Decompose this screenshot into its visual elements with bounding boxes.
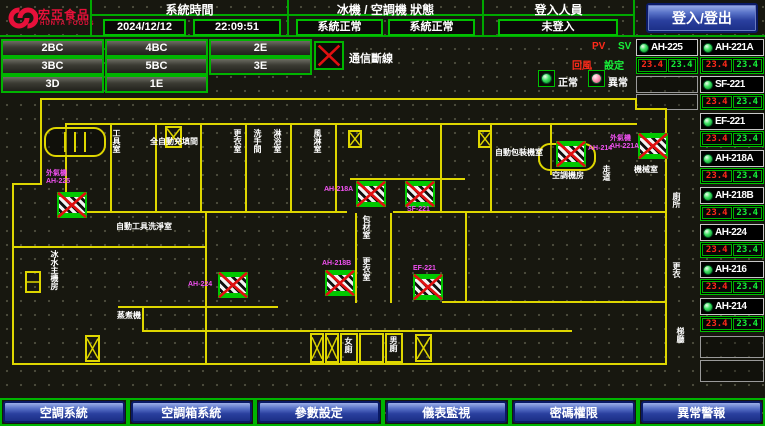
unit-label: AH-224	[188, 281, 212, 289]
wall	[12, 183, 14, 365]
room-label: 冰水主機房	[50, 250, 59, 290]
floor-button-2bc[interactable]: 2BC	[1, 39, 104, 57]
ahu-unit-icon-ah-225[interactable]	[57, 192, 87, 218]
stairs-icon	[44, 127, 106, 157]
room-label: 淋浴室	[273, 129, 282, 153]
unit-label: AH-214	[588, 145, 612, 153]
floor-button-4bc[interactable]: 4BC	[105, 39, 208, 57]
floor-button-1e[interactable]: 1E	[105, 75, 208, 93]
status-lamp-icon	[703, 228, 713, 238]
setpoint-row-label: 設定	[604, 57, 624, 72]
pv-header: PV	[592, 41, 605, 52]
ahu-unit-icon-sf-221[interactable]	[405, 181, 435, 207]
status-lamp-icon	[703, 43, 713, 53]
unit-label: SF-221	[407, 206, 430, 214]
status-lamp-icon	[703, 154, 713, 164]
shaft-x-icon	[85, 335, 100, 362]
room-label: 更衣室	[362, 257, 371, 281]
wall	[440, 125, 442, 211]
room-label: 蒸煮機	[117, 311, 141, 320]
floor-button-3bc[interactable]: 3BC	[1, 57, 104, 75]
shaft-x-icon	[310, 333, 324, 363]
shaft-x-icon	[325, 333, 339, 363]
comm-loss-label: 通信斷線	[349, 50, 393, 66]
room-label: 全自動充填間	[150, 137, 200, 146]
equipment-ah-225[interactable]: AH-225	[636, 39, 698, 56]
values-ah-218b: 23.423.4	[700, 205, 764, 221]
wall	[442, 301, 667, 303]
values-sf-221: 23.423.4	[700, 94, 764, 110]
floor-button-5bc[interactable]: 5BC	[105, 57, 208, 75]
values-ah-216: 23.423.4	[700, 279, 764, 295]
sv-header: SV	[618, 41, 631, 52]
nav-ac-system-button[interactable]: 空調系統	[3, 401, 125, 423]
room-label: 更衣	[672, 262, 681, 278]
status-lamp-icon	[639, 43, 649, 53]
wall	[335, 125, 337, 213]
room-label: 風淋室	[313, 129, 322, 153]
wall	[635, 108, 667, 110]
equipment-ah-224[interactable]: AH-224	[700, 224, 764, 241]
unit-label: 外氣機 AH-221A	[610, 135, 639, 151]
nav-password-auth-button[interactable]: 密碼權限	[513, 401, 635, 423]
brand-logo-icon	[8, 4, 38, 32]
wall	[12, 363, 667, 365]
nav-alarm-button[interactable]: 異常警報	[641, 401, 763, 423]
nav-parameter-set-button[interactable]: 參數設定	[258, 401, 380, 423]
shaft-x-icon	[415, 334, 432, 362]
equipment-ef-221[interactable]: EF-221	[700, 113, 764, 130]
nav-ahu-system-button[interactable]: 空調箱系統	[131, 401, 253, 423]
ahu-unit-icon-ah-218b[interactable]	[325, 270, 355, 296]
wall	[12, 183, 42, 185]
wall	[40, 98, 637, 100]
values-ah-225: 23.423.4	[636, 57, 698, 74]
room-label: 工具室	[112, 129, 121, 153]
shaft-x-icon	[348, 130, 362, 148]
status-lamp-icon	[703, 302, 713, 312]
wall	[12, 246, 207, 248]
unit-label: 外氣機 AH-225	[46, 170, 70, 186]
room-label: 廁所	[672, 192, 681, 208]
wall	[40, 98, 42, 185]
hmi-screen: { "header": { "brand": "宏亞食品", "brand_en…	[0, 0, 765, 426]
ahu-unit-icon-ef-221[interactable]	[413, 274, 443, 300]
floor-button-3e[interactable]: 3E	[209, 57, 312, 75]
room-label: 女廁	[344, 337, 353, 353]
ahu-unit-icon-ah-214[interactable]	[556, 141, 586, 167]
equipment-slot-empty	[636, 76, 698, 93]
equipment-ah-214[interactable]: AH-214	[700, 298, 764, 315]
unit-label: AH-218A	[324, 186, 353, 194]
room-label: 男廁	[389, 336, 398, 352]
floor-button-3d[interactable]: 3D	[1, 75, 104, 93]
ahu-unit-icon-ah-218a[interactable]	[356, 181, 386, 207]
bottom-nav: 空調系統 空調箱系統 參數設定 儀表監視 密碼權限 異常警報	[0, 398, 765, 426]
system-time-value: 22:09:51	[193, 19, 281, 36]
wall	[390, 213, 392, 303]
comm-loss-icon	[314, 41, 344, 70]
values-ah-214: 23.423.4	[700, 316, 764, 332]
login-user-value: 未登入	[498, 19, 618, 36]
system-date-value: 2024/12/12	[103, 19, 186, 36]
room-label: 梯廳	[676, 327, 685, 343]
normal-lamp-icon	[538, 70, 555, 87]
status-lamp-icon	[703, 191, 713, 201]
ahu-unit-icon-ah-221a[interactable]	[638, 133, 668, 159]
room-label: 空調機房	[552, 171, 584, 180]
equipment-ah-216[interactable]: AH-216	[700, 261, 764, 278]
wall	[142, 308, 144, 332]
ahu-unit-icon-ah-224[interactable]	[218, 272, 248, 298]
chiller-status-value: 系統正常	[296, 19, 383, 36]
values-ah-224: 23.423.4	[700, 242, 764, 258]
abnormal-lamp-icon	[588, 70, 605, 87]
wall	[290, 125, 292, 213]
wall	[465, 213, 467, 303]
unit-label: AH-218B	[322, 260, 351, 268]
room-label: 機械室	[634, 165, 658, 174]
login-person-label: 登入人員	[484, 1, 633, 16]
room-label: 走道	[602, 165, 611, 181]
ahu-status-value: 系統正常	[388, 19, 475, 36]
room-label: 自動工具洗淨室	[116, 222, 172, 231]
shaft-x-icon	[478, 130, 492, 148]
wall	[200, 125, 202, 213]
login-logout-button[interactable]: 登入/登出	[646, 3, 758, 33]
status-lamp-icon	[703, 265, 713, 275]
room-label: 自動包裝機室	[495, 148, 543, 157]
normal-legend-label: 正常	[558, 74, 578, 89]
room-label: 包材室	[362, 215, 371, 239]
equipment-box-icon	[25, 271, 41, 293]
status-lamp-icon	[703, 117, 713, 127]
room-box	[359, 333, 384, 363]
values-ah-218a: 23.423.4	[700, 168, 764, 184]
wall	[245, 125, 247, 213]
abnormal-legend-label: 異常	[608, 74, 628, 89]
chiller-ahu-status-label: 冰機 / 空調機 狀態	[289, 1, 482, 16]
equipment-ah-221a[interactable]: AH-221A	[700, 39, 764, 56]
room-label: 洗手間	[253, 129, 262, 153]
equipment-slot-empty	[700, 360, 764, 382]
equipment-sf-221[interactable]: SF-221	[700, 76, 764, 93]
equipment-ah-218a[interactable]: AH-218A	[700, 150, 764, 167]
room-label: 更衣室	[233, 129, 242, 153]
wall	[142, 330, 572, 332]
system-time-label: 系統時間	[92, 1, 287, 16]
unit-label: EF-221	[413, 265, 436, 273]
nav-meter-monitor-button[interactable]: 儀表監視	[386, 401, 508, 423]
equipment-slot-empty	[700, 336, 764, 358]
brand-name-en: HUNYA FOODS	[40, 21, 95, 27]
floor-button-2e[interactable]: 2E	[209, 39, 312, 57]
wall	[393, 211, 667, 213]
values-ah-221a: 23.423.4	[700, 57, 764, 74]
status-lamp-icon	[703, 80, 713, 90]
values-ef-221: 23.423.4	[700, 131, 764, 147]
equipment-ah-218b[interactable]: AH-218B	[700, 187, 764, 204]
